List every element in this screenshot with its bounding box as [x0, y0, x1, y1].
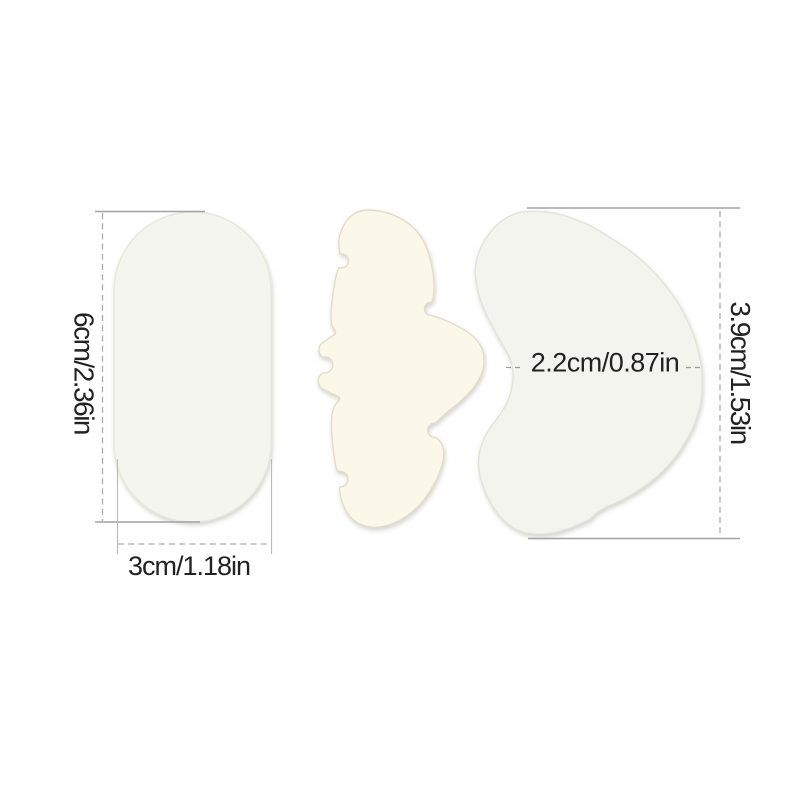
svg-text:3cm/1.18in: 3cm/1.18in	[128, 551, 250, 581]
svg-text:3.9cm/1.53in: 3.9cm/1.53in	[725, 301, 756, 443]
svg-text:6cm/2.36in: 6cm/2.36in	[69, 312, 100, 434]
svg-text:2.2cm/0.87in: 2.2cm/0.87in	[531, 348, 680, 378]
